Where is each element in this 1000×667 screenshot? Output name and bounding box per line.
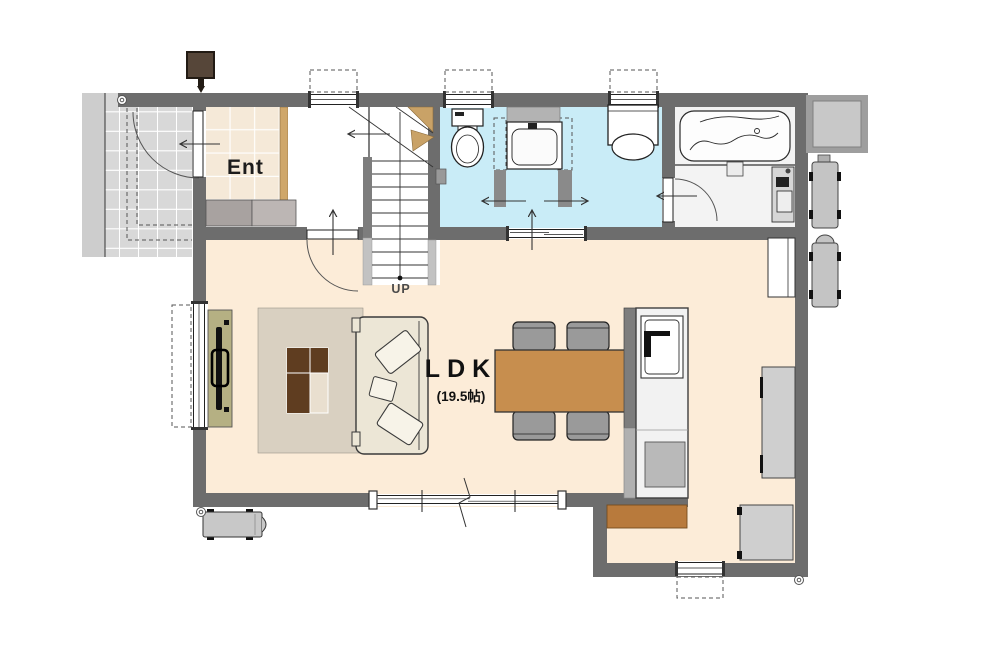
bath-counter (727, 162, 743, 176)
refrigerator (737, 505, 793, 560)
entrance-wood-trim (280, 107, 288, 200)
outdoor-ac-unit-left (203, 509, 266, 540)
dining-chair (567, 322, 609, 351)
dining-chair (567, 411, 609, 440)
window-hall-top (308, 70, 359, 108)
floor-plan-page: UP (0, 0, 1000, 667)
outdoor-pad (806, 95, 868, 153)
eave-dashed (677, 577, 723, 598)
outdoor-ac-unit-right (809, 235, 841, 307)
wall-cabinet (768, 238, 795, 297)
sofa (352, 317, 428, 454)
kitchen-island (624, 308, 688, 498)
porch (82, 93, 192, 257)
stove (645, 442, 685, 487)
ldk-area-label: (19.5帖) (437, 388, 486, 404)
eave-dashed (445, 70, 492, 92)
water-heater-unit (809, 155, 841, 228)
utility-marker-post (187, 52, 214, 93)
wall-shelf (507, 107, 560, 122)
hall-floor (288, 107, 363, 240)
entrance-label: Ent (227, 156, 264, 179)
dining-table (495, 350, 628, 412)
window-toilet-top (443, 70, 494, 108)
washroom-vanity (507, 107, 562, 169)
kitchen-counter (760, 367, 795, 478)
stairs-up-label: UP (391, 282, 410, 296)
shoe-cabinet (206, 200, 296, 226)
eave-dashed (610, 70, 657, 92)
living-table (287, 348, 328, 413)
cupboard (607, 505, 687, 528)
washing-machine (608, 105, 658, 160)
ldk-label: LDK (425, 355, 497, 383)
dining-chair (513, 322, 555, 351)
window-kitchen-south (675, 561, 725, 598)
toilet-remote (436, 169, 446, 184)
tv-board (208, 310, 232, 427)
eave-dashed (172, 305, 191, 427)
eave-dashed (310, 70, 357, 92)
dining-chair (513, 411, 555, 440)
window-living-left (172, 301, 208, 430)
tv (216, 327, 222, 410)
window-laundry-top (608, 70, 659, 108)
shower-unit (772, 167, 794, 222)
floor-plan-drawing: UP (0, 0, 1000, 667)
